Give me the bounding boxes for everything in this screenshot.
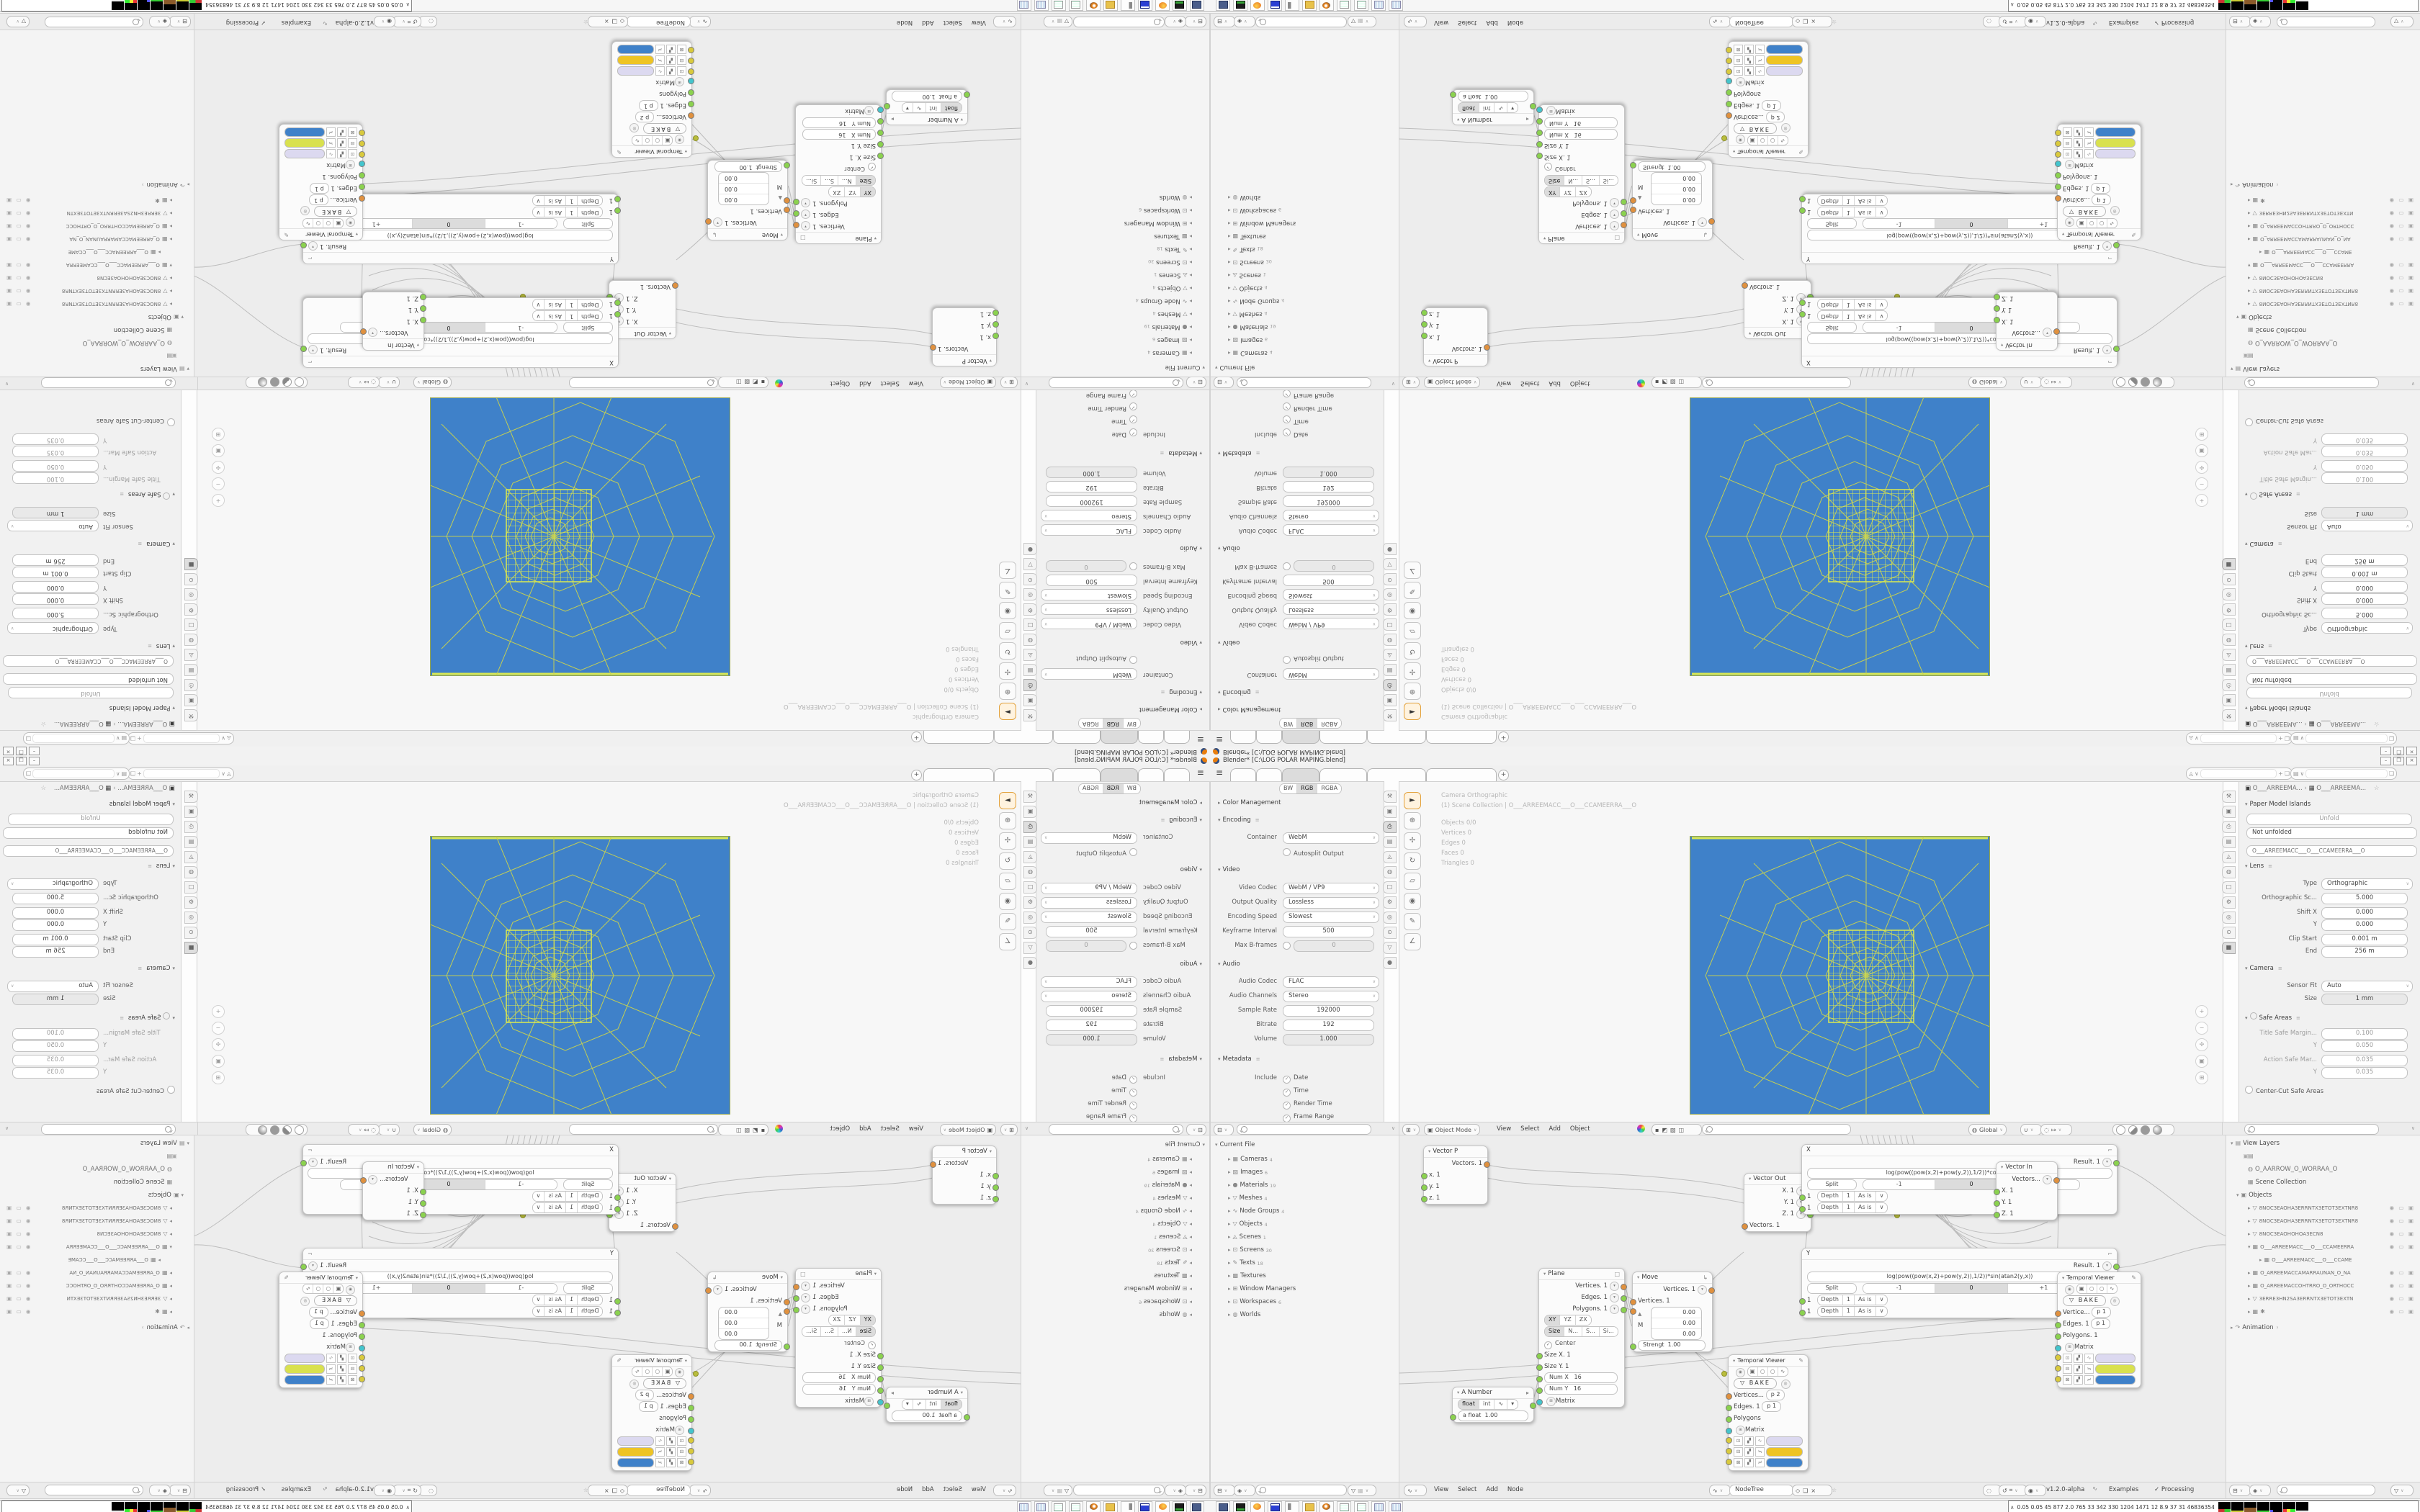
outliner-object-row[interactable]: ▸▽8NOC3EAOHOHOA3ECN8◉ ▭ ▣	[5, 275, 172, 282]
node-tree-name-field[interactable]: NodeTree	[627, 1485, 691, 1496]
pin-icon[interactable]: ☆	[2374, 785, 2380, 792]
workspace-tab-1[interactable]	[1164, 730, 1190, 744]
outliner-camera-row[interactable]: ▾▦O___ARREEMACC___O___CCAMEERRA◉ ▭ ▣	[2248, 1243, 2415, 1250]
viewport-3d[interactable]: ► ⊕ ✢ ↻ ▱ ◉ ✎ ∠ Camera Orthographic (1) …	[197, 389, 1021, 731]
zoom-out-button[interactable]: −	[2195, 477, 2208, 490]
filter-toggle-icon[interactable]: ∨	[2411, 381, 2415, 387]
menu-add[interactable]: Add	[922, 1486, 933, 1493]
style-icon[interactable]: ▞	[2074, 1364, 2083, 1374]
node-vector-p[interactable]: ▾Vector P Vectors. 1 x. 1 y. 1 z. 1	[1423, 1146, 1488, 1205]
socket-in[interactable]	[1536, 153, 1543, 159]
copy-icon[interactable]: ❏	[26, 770, 31, 777]
taskbar-emulator[interactable]	[1173, 0, 1187, 11]
expand-icon[interactable]: ▲	[779, 192, 782, 204]
tool-tab-icon[interactable]: ⚒	[1023, 791, 1037, 803]
style-icon[interactable]: ▞	[666, 55, 676, 65]
edges-color-swatch[interactable]	[2095, 138, 2136, 148]
close-button[interactable]: ×	[2406, 757, 2417, 765]
tool-tab-icon[interactable]: ⚒	[2222, 709, 2236, 721]
sensor-size-field[interactable]: 1 mm	[2321, 507, 2408, 518]
sverchok-processing-toggle[interactable]: ✓ Processing	[226, 19, 266, 26]
video-codec-dropdown[interactable]: WebM / VP9∨	[1041, 883, 1137, 894]
outliner-empty-row[interactable]: ▸▦✱◉ ▭ ▣	[5, 1308, 172, 1315]
workspace-tab-5[interactable]	[1367, 730, 1426, 744]
size-mode-segment[interactable]: SizeN...S...Si...	[1544, 1326, 1618, 1337]
node-tree-name-field[interactable]: NodeTree	[1729, 16, 1793, 27]
render-tab-icon[interactable]: ▣	[2222, 694, 2236, 706]
outliner-item-scenes[interactable]: ▸◬Scenes 1	[1228, 271, 1266, 279]
socket-in[interactable]	[1421, 1196, 1428, 1202]
node-formula-x[interactable]: X⌐ Result. 1▾ log(pow((pow(x,2)+pow(y,2)…	[1801, 297, 2117, 368]
node-header[interactable]: ▾Move↳	[708, 1272, 787, 1284]
video-codec-dropdown[interactable]: WebM / VP9∨	[1041, 618, 1137, 629]
node-move[interactable]: ▾Move↳ Vertices. 1▾ Vertices. 1 ▲ M 0.00…	[1632, 1272, 1713, 1352]
p-field[interactable]: p 1	[1762, 100, 1781, 111]
pan-button[interactable]: ✢	[212, 461, 225, 474]
mem-graph-icon[interactable]	[2231, 0, 2244, 10]
metadata-date-checkbox[interactable]: ✓Date	[1283, 428, 1308, 438]
outliner-object-row[interactable]: ▸▽8NOC3EAOHA3ERRNTX3ETOT3EXTNR8◉ ▭ ▣	[2248, 1205, 2415, 1211]
menu-view[interactable]: View	[1434, 1486, 1448, 1493]
transform-tool[interactable]: ◉	[999, 893, 1016, 910]
edges-icon[interactable]: ⊟	[677, 55, 686, 65]
verts-color-swatch[interactable]	[617, 1436, 654, 1446]
workspace-tab-1[interactable]	[1164, 768, 1190, 782]
outliner-item-images[interactable]: ▸▨Images 6	[1152, 1169, 1192, 1176]
node-plane[interactable]: ▾Plane□ Vertices. 1▾ Edges. 1▾ Polygons.…	[1538, 104, 1625, 244]
outliner-item-screens[interactable]: ▸⊡Screens 30	[1228, 1246, 1272, 1254]
shift-y-field[interactable]: 0.000	[12, 581, 99, 593]
socket-in[interactable]	[688, 68, 694, 75]
filter-toggle-icon[interactable]: ∨	[1025, 381, 1028, 387]
breadcrumb-data[interactable]: O___ARREEMA...	[54, 720, 104, 727]
vector-x-field[interactable]: 0.00	[1652, 1308, 1701, 1318]
socket-in[interactable]	[1799, 1206, 1806, 1212]
taskbar-file-manager[interactable]	[1302, 1501, 1317, 1512]
video-codec-dropdown[interactable]: WebM / VP9∨	[1283, 883, 1379, 894]
title-safe-y-field[interactable]: 0.050	[12, 460, 99, 472]
max-bframes-checkbox[interactable]	[1126, 561, 1137, 570]
measure-tool[interactable]: ∠	[999, 562, 1016, 579]
audio-codec-dropdown[interactable]: FLAC∨	[1041, 976, 1137, 988]
bitrate-field[interactable]: 192	[1283, 481, 1374, 492]
socket-in[interactable]	[1630, 1344, 1636, 1350]
collapse-tray-icon[interactable]: ∧	[2010, 2, 2015, 9]
taskbar-notepad-2[interactable]	[1052, 0, 1066, 11]
outliner-empty-row[interactable]: ▸▦✱◉ ▭ ▣	[2248, 1308, 2415, 1315]
style-icon[interactable]: ▞	[337, 1364, 346, 1374]
orientation-dropdown[interactable]: ◍Global∨	[1968, 1124, 2007, 1135]
node-header[interactable]: X⌐	[303, 1145, 618, 1156]
tree-action-buttons[interactable]: ◇❏×	[588, 1485, 628, 1496]
proportional-edit-toggle[interactable]: ◌↦∨	[2040, 377, 2072, 388]
lens-type-dropdown[interactable]: Orthographic∨	[7, 878, 99, 890]
outliner-item-workspaces[interactable]: ▸⊡Workspaces 6	[1228, 207, 1281, 214]
vector-y-field[interactable]: 0.00	[1652, 183, 1701, 194]
outliner-item-cameras[interactable]: ▸▦Cameras 4	[1228, 349, 1273, 356]
scene-selector[interactable]: ◬∨ + ❏	[127, 732, 234, 744]
filter-toggle-icon[interactable]: ∨	[5, 381, 9, 387]
expand-icon[interactable]: ▲	[1638, 1308, 1641, 1320]
socket-in[interactable]	[1630, 207, 1636, 213]
mem-graph-icon[interactable]	[176, 0, 189, 10]
socket-in[interactable]	[359, 1345, 365, 1351]
p-field[interactable]: p 1	[2092, 194, 2111, 205]
action-safe-x-field[interactable]: 0.035	[2321, 446, 2408, 457]
audio-codec-dropdown[interactable]: FLAC∨	[1041, 524, 1137, 536]
menu-add[interactable]: Add	[859, 379, 871, 387]
annotate-tool[interactable]: ✎	[999, 582, 1016, 599]
outliner-object-row[interactable]: ▸▽8NOC3EAOHOHOA3ECN8◉ ▭ ▣	[2248, 275, 2415, 282]
cursor-tool[interactable]: ⊕	[1404, 683, 1421, 700]
socket-in[interactable]	[992, 310, 999, 316]
formula-field[interactable]: log(pow((pow(x,2)+pow(y,2)),1/2))*cos(at…	[308, 333, 613, 344]
copy-icon[interactable]: ❏	[130, 735, 135, 742]
format-rgb[interactable]: RGB	[1297, 719, 1317, 728]
camera-data-selector[interactable]: O___ARREEMACC___O___CCAMEERRA___O	[2246, 845, 2417, 857]
socket-out[interactable]	[793, 199, 799, 205]
node-header[interactable]: ▾Plane□	[796, 1269, 881, 1280]
socket-in[interactable]	[688, 58, 694, 64]
vector-x-field[interactable]: 0.00	[719, 1308, 768, 1318]
depth-segment[interactable]: Depth1As is∨	[532, 1295, 604, 1305]
socket-in[interactable]	[784, 1299, 790, 1305]
node-header[interactable]: ▾Temporal Viewer✎	[2058, 1272, 2141, 1284]
scene-name-field[interactable]	[143, 769, 220, 778]
overlay-button[interactable]: ◉∨	[374, 1485, 395, 1496]
proportional-edit-toggle[interactable]: ◌↦∨	[348, 377, 380, 388]
annotate-tool[interactable]: ✎	[999, 913, 1016, 930]
color-format-segment[interactable]: BW RGB RGBA	[1078, 783, 1141, 794]
filter-funnel-button[interactable]: ▽▦∨	[1348, 16, 1376, 27]
node-header[interactable]: ▾Temporal Viewer✎	[1729, 1355, 1808, 1367]
p-field[interactable]: p 1	[310, 1318, 329, 1329]
socket-in[interactable]	[2055, 1354, 2061, 1361]
fill-icon[interactable]: ≓	[655, 1458, 665, 1467]
depth-segment[interactable]: Depth1As is∨	[1817, 1191, 1888, 1202]
bitrate-field[interactable]: 192	[1283, 1020, 1374, 1031]
object-tab-icon[interactable]: □	[1383, 881, 1397, 894]
number-mode-segment[interactable]: floatint∿▾	[902, 102, 962, 113]
taskbar-emulator[interactable]	[1233, 1501, 1247, 1512]
edges-icon[interactable]: ⊟	[348, 1364, 357, 1374]
object-tab-icon[interactable]: □	[1023, 881, 1037, 894]
outliner-item-meshes[interactable]: ▸▽Meshes 4	[1152, 1194, 1192, 1202]
outliner-item-worlds[interactable]: ▸◍Worlds	[1228, 194, 1260, 201]
orientation-dropdown[interactable]: ◍Global∨	[413, 1124, 452, 1135]
node-header[interactable]: ▾Temporal Viewer✎	[2058, 228, 2141, 240]
verts-icon[interactable]: ⊡	[1734, 66, 1743, 76]
socket-in[interactable]	[784, 1344, 790, 1350]
action-safe-y-field[interactable]: 0.035	[12, 433, 99, 445]
sverchok-examples-menu[interactable]: Examples	[282, 1486, 311, 1493]
scene-tab-icon[interactable]: ◬	[184, 851, 198, 863]
outliner-object-row[interactable]: ▸▽8NOC3EAOHA3ERRNTX3ETOT3EXTNR8◉ ▭ ▣	[2248, 1218, 2415, 1224]
outliner-item-textures[interactable]: ▸▩Textures	[1154, 1272, 1192, 1279]
panel-video[interactable]: ▾Video	[1218, 866, 1240, 873]
node-header[interactable]: ▾Temporal Viewer✎	[279, 1272, 362, 1284]
camera-data-selector[interactable]: O___ARREEMACC___O___CCAMEERRA___O	[3, 655, 174, 667]
clip-start-field[interactable]: 0.001 m	[12, 567, 99, 578]
node-tree-name-field[interactable]: NodeTree	[627, 16, 691, 27]
socket-in[interactable]	[688, 1416, 694, 1423]
workspace-tab-5[interactable]	[994, 730, 1053, 744]
material-shading-icon[interactable]	[270, 1125, 279, 1135]
outliner-camera-row[interactable]: ▾▦O___ARREEMACC___O___CCAMEERRA◉ ▭ ▣	[5, 262, 172, 269]
outliner-search-input[interactable]	[2244, 1124, 2379, 1135]
node-vector-in[interactable]: ▾Vector In Vectors...▾ X. 1 Y. 1 Z. 1	[362, 1161, 424, 1220]
outliner-arrow-object[interactable]: ◍O_AARROW_O_WORRAA_O	[83, 339, 172, 346]
restore-button[interactable]: ❒	[2393, 757, 2404, 765]
outliner-camera-row[interactable]: ▸▦O_ARREEMACCAMARRAUNAN_O_NA◉ ▭ ▣	[5, 1269, 172, 1276]
vector-z-field[interactable]: 0.00	[719, 1329, 768, 1339]
load-graph-icon[interactable]	[125, 0, 137, 10]
edges-color-swatch[interactable]	[284, 1364, 325, 1374]
camera-view-button[interactable]: ▣	[212, 1055, 225, 1068]
window-titlebar[interactable]: Blender* [C:\LOG POLAR MAPING.blend] – ❒…	[0, 756, 1210, 766]
socket-in[interactable]	[1742, 1223, 1748, 1230]
metadata-time-checkbox[interactable]: ✓Time	[1283, 415, 1309, 425]
socket-in[interactable]	[2055, 130, 2061, 136]
shift-y-field[interactable]: 0.000	[2321, 581, 2408, 593]
output-quality-dropdown[interactable]: Lossless∨	[1041, 603, 1137, 615]
metadata-date-checkbox[interactable]: ✓Date	[1112, 1074, 1137, 1084]
select-box-tool[interactable]: ►	[1404, 703, 1421, 720]
grid-toggle-button[interactable]: ⊞	[212, 1071, 225, 1084]
menu-select[interactable]: Select	[944, 19, 962, 26]
socket-in[interactable]	[2055, 140, 2061, 147]
socket-in[interactable]	[1726, 1459, 1732, 1465]
temp-graph-icon[interactable]	[2270, 0, 2282, 10]
audio-channels-dropdown[interactable]: Stereo∨	[1041, 510, 1137, 521]
socket-out[interactable]	[2113, 346, 2120, 352]
copy-icon[interactable]: ❏	[2389, 770, 2394, 777]
modifier-tab-icon[interactable]: ⚙	[1383, 896, 1397, 909]
node-header[interactable]: ▾Plane□	[796, 232, 881, 243]
strength-field[interactable]: Strengt 1.00	[714, 161, 782, 172]
world-tab-icon[interactable]: ◍	[1023, 634, 1037, 646]
menu-node[interactable]: Node	[897, 1486, 913, 1493]
socket-in[interactable]	[1799, 196, 1806, 202]
node-a-number[interactable]: ▾A Number▸ floatint∿▾ a float 1.00	[1452, 1387, 1534, 1423]
node-header[interactable]: ▾Move↳	[1633, 1272, 1712, 1284]
node-temporal-viewer-left[interactable]: ▾Temporal Viewer✎ ◉ ▣○○∿ ▽ BAKE ◎ Vertic…	[611, 1354, 692, 1471]
style-icon[interactable]: ▞	[666, 1447, 676, 1457]
render-tab-icon[interactable]: ▣	[1383, 694, 1397, 706]
output-quality-dropdown[interactable]: Lossless∨	[1283, 603, 1379, 615]
socket-in[interactable]	[359, 172, 365, 179]
faces-color-swatch[interactable]	[2095, 1375, 2136, 1385]
pin-icon[interactable]: ☆	[1832, 19, 1837, 25]
camera-data-tab-icon[interactable]: ▦	[2222, 942, 2236, 954]
action-safe-y-field[interactable]: 0.035	[12, 1067, 99, 1079]
load-graph-icon[interactable]	[2283, 1502, 2295, 1512]
verts-icon[interactable]: ⊡	[348, 149, 357, 158]
overlay-button[interactable]: ◉∨	[374, 16, 395, 27]
verts-color-swatch[interactable]	[284, 1354, 325, 1363]
sensor-size-field[interactable]: 1 mm	[12, 994, 99, 1005]
output-tab-icon[interactable]: ⎙	[1023, 679, 1037, 691]
outliner-camera-data-row[interactable]: ▸▦O___ARREEMACC___O___CCAME	[5, 249, 161, 256]
bake-button[interactable]: ▽ BAKE	[2063, 206, 2106, 217]
color-wheel-icon[interactable]	[1637, 379, 1645, 387]
viewlayer-selector[interactable]: ▤∨ ❏	[23, 732, 130, 744]
encoding-speed-dropdown[interactable]: Slowest∨	[1283, 912, 1379, 923]
transform-tool[interactable]: ◉	[1404, 893, 1421, 910]
viewport-3d[interactable]: ► ⊕ ✢ ↻ ▱ ◉ ✎ ∠ Camera Orthographic (1) …	[1399, 389, 2223, 731]
viewlayer-tab-icon[interactable]: ▤	[1383, 836, 1397, 848]
socket-in[interactable]	[2055, 172, 2061, 179]
restore-button[interactable]: ❒	[16, 757, 27, 765]
faces-color-swatch[interactable]	[1766, 45, 1803, 54]
viewlayer-tab-icon[interactable]: ▤	[184, 836, 198, 848]
encoding-speed-dropdown[interactable]: Slowest∨	[1041, 912, 1137, 923]
menu-view[interactable]: View	[909, 379, 923, 387]
tool-tab-icon[interactable]: ⚒	[1023, 709, 1037, 721]
workspace-tab-6[interactable]	[1426, 768, 1497, 782]
panel-paper-model[interactable]: ▾Paper Model Islands	[109, 704, 175, 711]
ortho-scale-field[interactable]: 5.000	[2321, 608, 2408, 619]
depth-segment[interactable]: Depth1As is∨	[1817, 299, 1888, 310]
bake-button[interactable]: ▽ BAKE	[1734, 1378, 1777, 1389]
center-cut-checkbox[interactable]: Center-Cut Safe Areas	[2245, 417, 2323, 426]
scene-tab-icon[interactable]: ◬	[2222, 851, 2236, 863]
filter-toggle-icon[interactable]: ∨	[2411, 1125, 2415, 1131]
edges-icon[interactable]: ⊟	[677, 1447, 686, 1457]
panel-paper-model[interactable]: ▾Paper Model Islands	[2245, 801, 2311, 808]
panel-camera[interactable]: ▾Camera≡	[138, 965, 175, 972]
socket-out[interactable]	[1621, 1284, 1627, 1290]
socket-in[interactable]	[1450, 1414, 1456, 1421]
reroute-node[interactable]	[693, 135, 699, 141]
eye-icon[interactable]: ◉	[2065, 1285, 2074, 1295]
center-cut-checkbox[interactable]: Center-Cut Safe Areas	[97, 417, 175, 426]
node-plane[interactable]: ▾Plane□ Vertices. 1▾ Edges. 1▾ Polygons.…	[795, 104, 882, 244]
orientation-dropdown[interactable]: ◍Global∨	[1968, 377, 2007, 388]
socket-in[interactable]	[877, 1387, 884, 1394]
outliner-item-screens[interactable]: ▸⊡Screens 30	[1148, 1246, 1192, 1254]
display-mode-button[interactable]: ⊟∨	[169, 1485, 191, 1496]
verts-icon[interactable]: ⊡	[2063, 149, 2072, 158]
curve-icon[interactable]: ∿	[655, 66, 665, 76]
display-mode-button[interactable]: ⊟∨	[1214, 1485, 1235, 1496]
action-safe-x-field[interactable]: 0.035	[12, 446, 99, 457]
wireframe-shading-icon[interactable]	[295, 378, 304, 387]
num-x-field[interactable]: Num X 16	[1544, 129, 1618, 140]
format-bw[interactable]: BW	[1123, 784, 1140, 793]
socket-in[interactable]	[359, 1365, 365, 1372]
autosplit-checkbox[interactable]: Autosplit Output	[1076, 848, 1137, 858]
socket-out[interactable]	[1484, 344, 1490, 351]
editor-type-button[interactable]: ⊞∨	[1000, 377, 1018, 388]
split-button[interactable]: Split	[1807, 322, 1857, 333]
pin-icon[interactable]: +	[137, 735, 142, 742]
socket-out[interactable]	[1621, 1295, 1627, 1302]
modifier-tab-icon[interactable]: ⚙	[2222, 603, 2236, 616]
edges-icon[interactable]: ⊟	[1734, 1447, 1743, 1457]
outliner-item-meshes[interactable]: ▸▽Meshes 4	[1152, 310, 1192, 318]
outliner-search-input[interactable]	[1237, 377, 1371, 388]
outliner-item-scenes[interactable]: ▸◬Scenes 1	[1154, 1233, 1192, 1241]
edges-color-swatch[interactable]	[1766, 1447, 1803, 1457]
socket-in[interactable]	[992, 333, 999, 339]
refresh-icon[interactable]: ◎	[300, 1297, 310, 1306]
socket-in[interactable]	[992, 1196, 999, 1202]
strength-field[interactable]: Strengt 1.00	[714, 1340, 782, 1351]
center-cut-checkbox[interactable]: Center-Cut Safe Areas	[2245, 1086, 2323, 1095]
outliner-viewlayer-icon-row[interactable]: ▤▣	[164, 352, 172, 359]
clock-graph-icon[interactable]	[2296, 1502, 2308, 1512]
socket-in[interactable]	[688, 1448, 694, 1454]
faces-icon[interactable]: ⊠	[2063, 1375, 2072, 1385]
node-header[interactable]: ▾Temporal Viewer✎	[279, 228, 362, 240]
socket-in[interactable]	[2055, 1365, 2061, 1372]
vector-x-field[interactable]: 0.00	[719, 194, 768, 204]
edges-color-swatch[interactable]	[617, 55, 654, 65]
outliner-animation-row[interactable]: ▸↷Animation²	[142, 181, 189, 188]
node-a-number[interactable]: ▾A Number▸ floatint∿▾ a float 1.00	[886, 1387, 968, 1423]
menu-select[interactable]: Select	[881, 1125, 900, 1133]
viewport-search-input[interactable]	[1702, 1124, 1851, 1135]
container-dropdown[interactable]: WebM∨	[1283, 832, 1379, 844]
title-safe-x-field[interactable]: 0.100	[2321, 1028, 2408, 1040]
outliner-objects-group[interactable]: ▾▣Objects	[2236, 1192, 2272, 1199]
breadcrumb-data[interactable]: O___ARREEMA...	[54, 785, 104, 792]
snap-toggle[interactable]: ∪∨	[378, 1124, 400, 1135]
ortho-scale-field[interactable]: 5.000	[12, 893, 99, 904]
node-move[interactable]: ▾Move↳ Vertices. 1▾ Vertices. 1 ▲ M 0.00…	[1632, 160, 1713, 240]
world-tab-icon[interactable]: ◍	[2222, 634, 2236, 646]
material-shading-icon[interactable]	[270, 378, 279, 387]
socket-in[interactable]	[784, 162, 790, 168]
socket-in[interactable]	[877, 118, 884, 125]
object-tab-icon[interactable]: □	[1023, 618, 1037, 631]
minimize-button[interactable]: –	[29, 747, 40, 755]
style-icon[interactable]: ▞	[666, 45, 676, 54]
outliner-arrow-object[interactable]: ◍O_AARROW_O_WORRAA_O	[2248, 1166, 2337, 1173]
taskbar-file-manager[interactable]	[1103, 1501, 1118, 1512]
menu-select[interactable]: Select	[944, 1486, 962, 1493]
node-vector-p[interactable]: ▾Vector P Vectors. 1 x. 1 y. 1 z. 1	[932, 1146, 997, 1205]
socket-in[interactable]	[359, 140, 365, 147]
output-quality-dropdown[interactable]: Lossless∨	[1041, 897, 1137, 909]
socket-in[interactable]	[1994, 305, 2000, 312]
socket-out[interactable]	[884, 1403, 890, 1409]
modifier-tab-icon[interactable]: ⚙	[1023, 896, 1037, 909]
sverchok-node-editor[interactable]: ▾Vector P Vectors. 1 x. 1 y. 1 z. 1 ▾A N…	[193, 1135, 1021, 1483]
max-bframes-checkbox[interactable]	[1283, 561, 1294, 570]
panel-safe-areas[interactable]: ▾Safe Areas≡	[2245, 1012, 2300, 1022]
format-rgb[interactable]: RGB	[1103, 784, 1123, 793]
taskbar-calculator-2[interactable]	[1389, 1501, 1403, 1512]
output-tab-icon[interactable]: ⎙	[1023, 821, 1037, 833]
filter-funnel-button[interactable]: ▽∨	[2390, 16, 2414, 27]
outliner-animation-row[interactable]: ▸↷Animation²	[2231, 1324, 2278, 1331]
outliner-camera-row[interactable]: ▸▦O_ARREEMACCOHTRRO_O_ORTHOCC◉ ▭ ▣	[2248, 1282, 2415, 1289]
panel-metadata[interactable]: ▾Metadata≡	[1218, 449, 1260, 456]
outliner-item-images[interactable]: ▸▨Images 6	[1152, 336, 1192, 343]
refresh-icon[interactable]: ◎	[1781, 1380, 1791, 1389]
workspace-tab-1[interactable]	[1230, 768, 1256, 782]
world-tab-icon[interactable]: ◍	[1383, 866, 1397, 878]
outliner-item-screens[interactable]: ▸⊡Screens 30	[1148, 258, 1192, 266]
taskbar-volume[interactable]	[1285, 0, 1299, 11]
socket-in[interactable]	[2055, 184, 2061, 190]
viewlayer-tab-icon[interactable]: ▤	[2222, 836, 2236, 848]
camera-view-button[interactable]: ▣	[212, 444, 225, 457]
socket-in[interactable]	[1799, 207, 1806, 214]
outliner-item-objects[interactable]: ▸▽Objects 4	[1228, 284, 1268, 292]
